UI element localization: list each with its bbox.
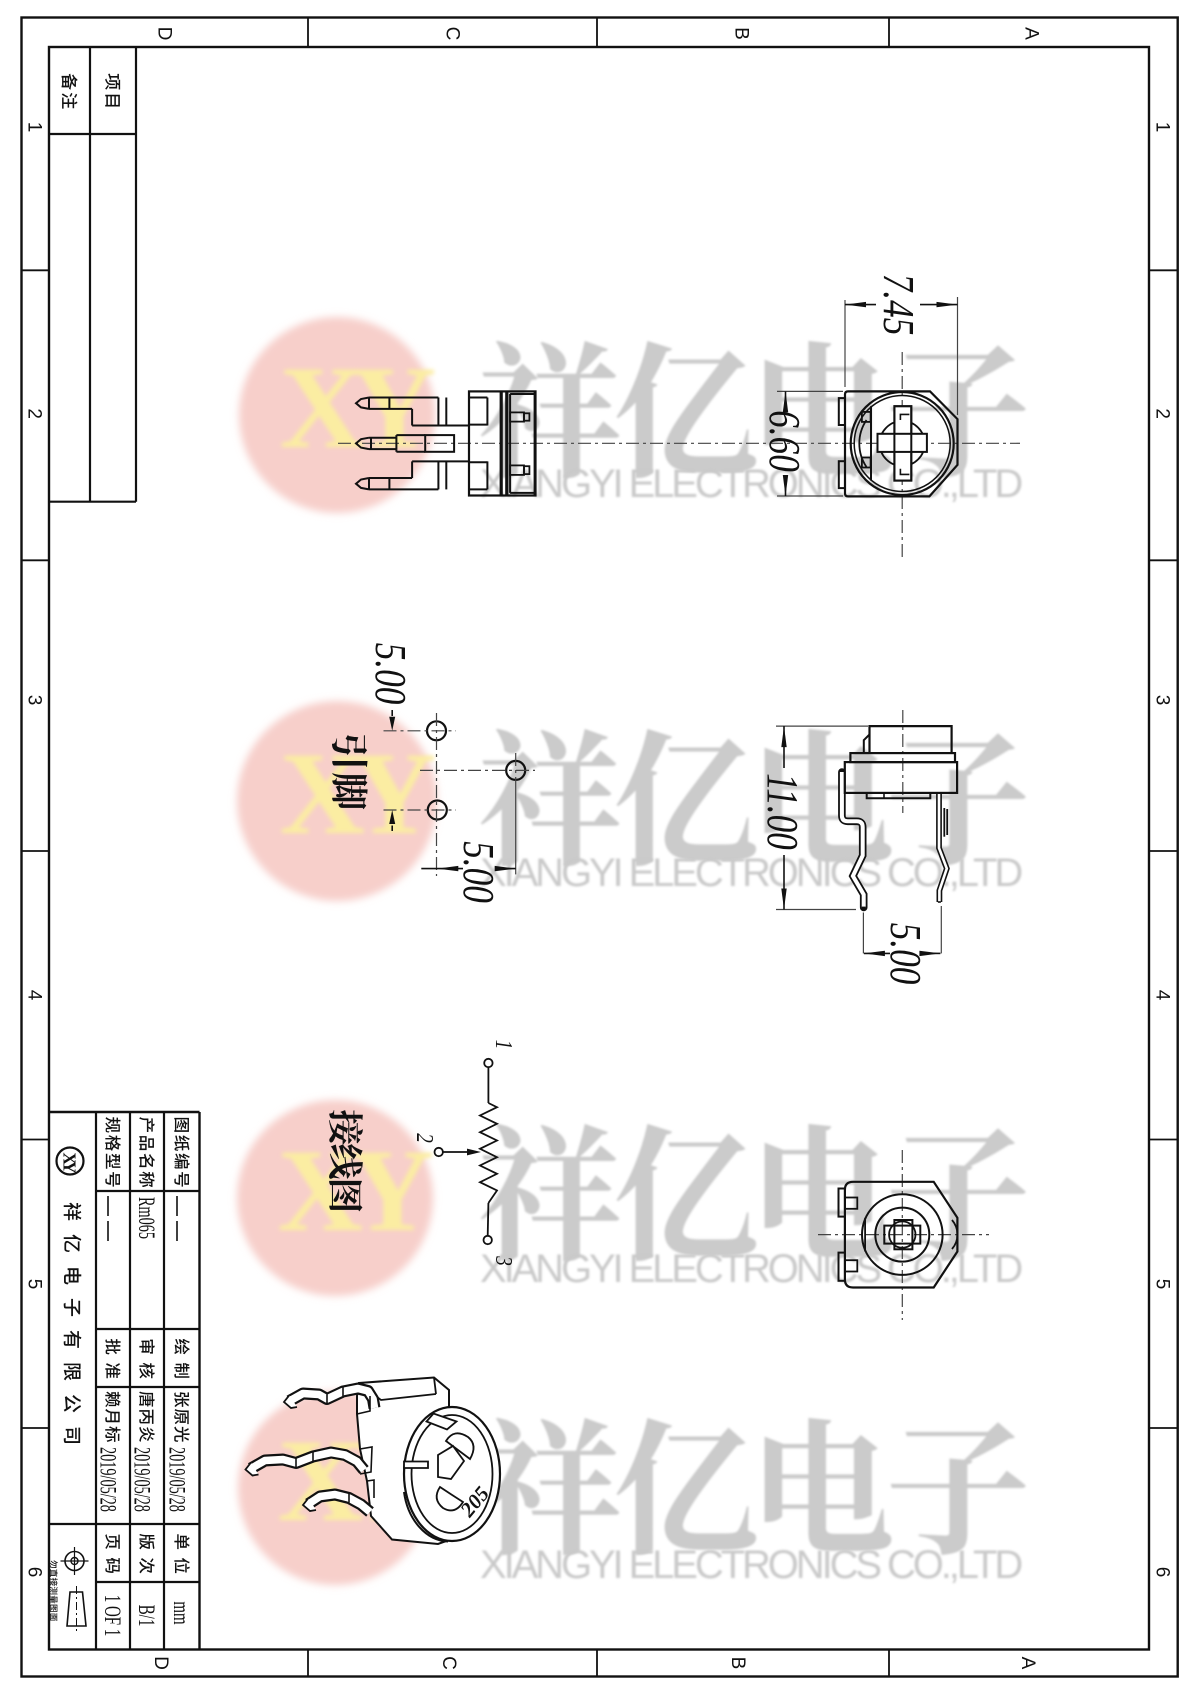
svg-text:5.00: 5.00 — [881, 923, 931, 985]
svg-text:11.00: 11.00 — [758, 773, 808, 850]
svg-text:C: C — [442, 27, 463, 41]
svg-text:XIANGYI ELECTRONICS CO.,LTD: XIANGYI ELECTRONICS CO.,LTD — [480, 1543, 1021, 1587]
svg-text:B: B — [731, 27, 752, 40]
svg-text:2019/05/28: 2019/05/28 — [128, 1447, 153, 1512]
svg-text:4: 4 — [24, 990, 45, 1001]
svg-text:B/1: B/1 — [133, 1605, 158, 1627]
svg-text:Rm065: Rm065 — [133, 1197, 158, 1239]
svg-text:XIANGYI ELECTRONICS CO.,LTD: XIANGYI ELECTRONICS CO.,LTD — [480, 1247, 1021, 1291]
svg-text:6: 6 — [24, 1567, 45, 1578]
svg-text:7.45: 7.45 — [874, 274, 924, 336]
svg-text:1 OF 1: 1 OF 1 — [99, 1595, 124, 1636]
svg-text:A: A — [1021, 27, 1042, 40]
svg-text:2: 2 — [1152, 408, 1173, 419]
svg-text:5.00: 5.00 — [454, 841, 504, 903]
svg-text:2019/05/28: 2019/05/28 — [94, 1447, 119, 1512]
svg-text:5: 5 — [1152, 1279, 1173, 1290]
svg-text:4: 4 — [1152, 990, 1173, 1001]
svg-text:C: C — [438, 1656, 459, 1670]
svg-text:A: A — [1017, 1657, 1038, 1670]
svg-text:1: 1 — [490, 1040, 517, 1050]
svg-text:1: 1 — [1152, 122, 1173, 133]
svg-text:3: 3 — [24, 695, 45, 706]
svg-text:6: 6 — [1152, 1567, 1173, 1578]
svg-text:XY: XY — [280, 728, 434, 859]
svg-text:3: 3 — [490, 1255, 517, 1266]
svg-text:3: 3 — [1152, 695, 1173, 706]
svg-text:B: B — [727, 1657, 748, 1670]
svg-text:mm: mm — [168, 1601, 193, 1624]
svg-text:D: D — [154, 27, 175, 41]
svg-text:2: 2 — [24, 408, 45, 419]
svg-text:6.60: 6.60 — [760, 410, 810, 472]
svg-text:D: D — [150, 1656, 171, 1670]
svg-text:5.00: 5.00 — [366, 643, 416, 705]
svg-text:2: 2 — [411, 1133, 438, 1143]
svg-text:5: 5 — [24, 1279, 45, 1290]
svg-text:1: 1 — [24, 122, 45, 133]
svg-text:2019/05/28: 2019/05/28 — [163, 1447, 188, 1512]
svg-text:XY: XY — [280, 342, 434, 473]
